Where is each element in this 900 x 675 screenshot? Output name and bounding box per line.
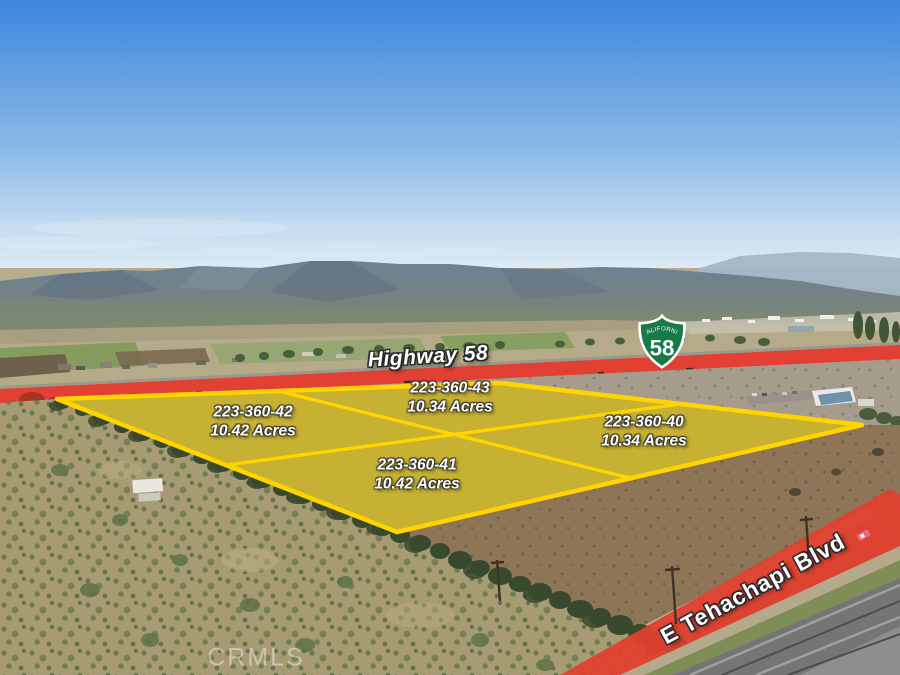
aerial-listing-photo: Highway 58 223-360-42 10.42 Acres 223-36… [0,0,900,675]
shield-route-number: 58 [650,335,675,360]
parcel-apn: 223-360-42 [210,403,296,422]
crmls-watermark: CRMLS [207,644,305,673]
california-route-58-shield-icon: CALIFORNIA 58 [636,314,688,369]
parcel-label-41: 223-360-41 10.42 Acres [374,456,460,495]
parcel-acres: 10.34 Acres [407,398,493,417]
parcel-acres: 10.34 Acres [601,432,687,451]
parcel-label-43: 223-360-43 10.34 Acres [407,379,493,418]
parcel-acres: 10.42 Acres [374,475,460,494]
parcel-apn: 223-360-40 [601,413,687,432]
parcel-apn: 223-360-43 [407,379,493,398]
parcel-label-40: 223-360-40 10.34 Acres [601,413,687,452]
parcel-acres: 10.42 Acres [210,422,296,441]
sky [0,0,900,268]
parcel-label-42: 223-360-42 10.42 Acres [210,403,296,442]
parcel-apn: 223-360-41 [374,456,460,475]
